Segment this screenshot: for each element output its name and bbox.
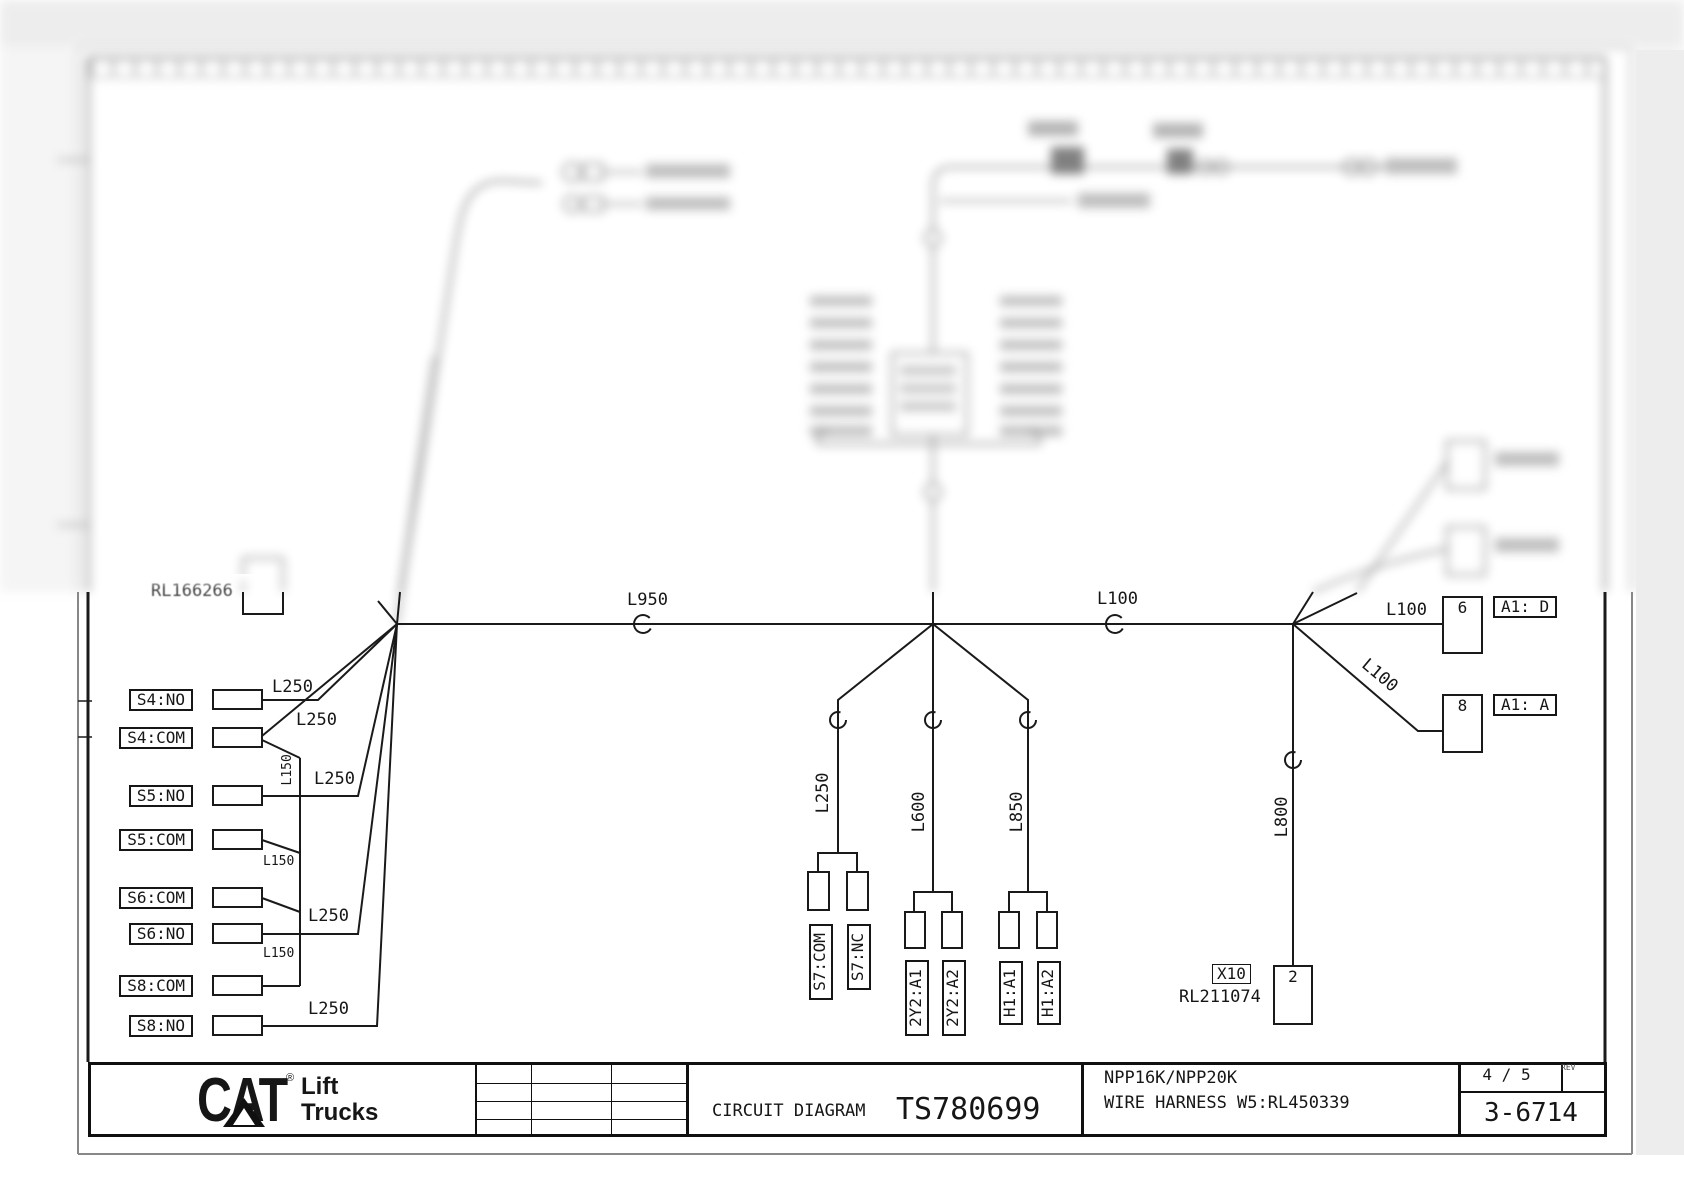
pin-label-s7com: S7:COM xyxy=(809,924,833,1000)
ref-label-a1d: A1: D xyxy=(1493,596,1557,618)
rev-grid-col xyxy=(531,1065,532,1134)
divider xyxy=(475,1065,477,1134)
wire-s6com xyxy=(262,898,300,912)
wire-label-l250-s4no: L250 xyxy=(272,679,313,697)
ref-label-a1a: A1: A xyxy=(1493,694,1557,716)
wire-label-l600: L600 xyxy=(911,790,929,834)
wire-label-l250-drop: L250 xyxy=(815,771,833,815)
pin-label-h1a2: H1:A2 xyxy=(1037,961,1061,1025)
divider xyxy=(686,1065,689,1134)
rev-label: REV xyxy=(1561,1064,1575,1072)
cat-logo-subtext: Lift Trucks xyxy=(301,1074,378,1127)
wire-label-l250-s5no: L250 xyxy=(314,771,355,789)
drop-2y2 xyxy=(914,624,952,912)
wire-label-l250-s4com: L250 xyxy=(296,712,337,730)
pin-label-2y2a1: 2Y2:A1 xyxy=(905,960,929,1036)
partial-connector-box xyxy=(243,592,283,614)
blur-fade-cap xyxy=(140,574,260,588)
cat-logo-line1: Lift xyxy=(301,1074,378,1100)
circuit-diagram-sheet: RL166266 S4:NO S4:COM S5:NO S5:COM S6:CO… xyxy=(0,0,1684,1191)
terminal-connectors xyxy=(213,690,262,1035)
doc-code: 3-6714 xyxy=(1455,1100,1607,1127)
wire-label-l800: L800 xyxy=(1274,795,1292,839)
terminal-label-s8no: S8:NO xyxy=(129,1015,193,1037)
diagram-linework xyxy=(0,0,1684,1191)
drop-h1 xyxy=(933,624,1047,912)
margin-tick-marks xyxy=(78,701,92,737)
rev-grid-row xyxy=(475,1083,686,1084)
wire-label-l250-s6no: L250 xyxy=(308,908,349,926)
terminal-label-s5no: S5:NO xyxy=(129,785,193,807)
wire-label-l100-top: L100 xyxy=(1386,602,1427,620)
terminal-label-s6com: S6:COM xyxy=(119,887,193,909)
sheet-number: 4 / 5 xyxy=(1455,1067,1558,1084)
drawing-type-label: CIRCUIT DIAGRAM xyxy=(712,1103,866,1121)
wire-label-l150-1: L150 xyxy=(281,750,295,790)
registered-mark-icon: ® xyxy=(286,1072,294,1084)
divider xyxy=(1458,1091,1604,1093)
terminal-label-s4no: S4:NO xyxy=(129,689,193,711)
cat-logo-triangle-inner-icon xyxy=(233,1108,255,1125)
junction-right-stubs xyxy=(1293,592,1357,624)
drawing-number: TS780699 xyxy=(896,1094,1041,1126)
drop-s7 xyxy=(818,624,933,872)
wire-label-l950: L950 xyxy=(627,592,668,610)
cat-logo-line2: Trucks xyxy=(301,1100,378,1126)
pin-label-2y2a2: 2Y2:A2 xyxy=(942,960,966,1036)
junction-left-stubs xyxy=(378,592,400,624)
wire-label-l850: L850 xyxy=(1009,790,1027,834)
pin-label-h1a1: H1:A1 xyxy=(999,961,1023,1025)
wire-label-l100-bus: L100 xyxy=(1097,591,1138,609)
connector-pin-8: 8 xyxy=(1443,698,1482,715)
part-number-x10: RL211074 xyxy=(1179,989,1261,1007)
wire-label-l150-3: L150 xyxy=(263,947,294,961)
harness-label: WIRE HARNESS W5:RL450339 xyxy=(1104,1095,1350,1113)
rev-grid-row xyxy=(475,1119,686,1120)
rev-grid-row xyxy=(475,1101,686,1102)
model-label: NPP16K/NPP20K xyxy=(1104,1070,1237,1088)
terminal-label-s6no: S6:NO xyxy=(129,923,193,945)
wire-s5com xyxy=(262,840,300,853)
wire-label-l250-s8no: L250 xyxy=(308,1001,349,1019)
terminal-label-s4com: S4:COM xyxy=(119,727,193,749)
terminal-label-s8com: S8:COM xyxy=(119,975,193,997)
wire-label-l150-2: L150 xyxy=(263,855,294,869)
connector-pin-6: 6 xyxy=(1443,600,1482,617)
connector-label-x10: X10 xyxy=(1212,964,1251,984)
terminal-label-s5com: S5:COM xyxy=(119,829,193,851)
pin-label-s7nc: S7:NC xyxy=(847,924,871,990)
rev-grid-col xyxy=(611,1065,612,1134)
divider xyxy=(1081,1065,1084,1134)
connector-pin-2: 2 xyxy=(1274,969,1312,986)
